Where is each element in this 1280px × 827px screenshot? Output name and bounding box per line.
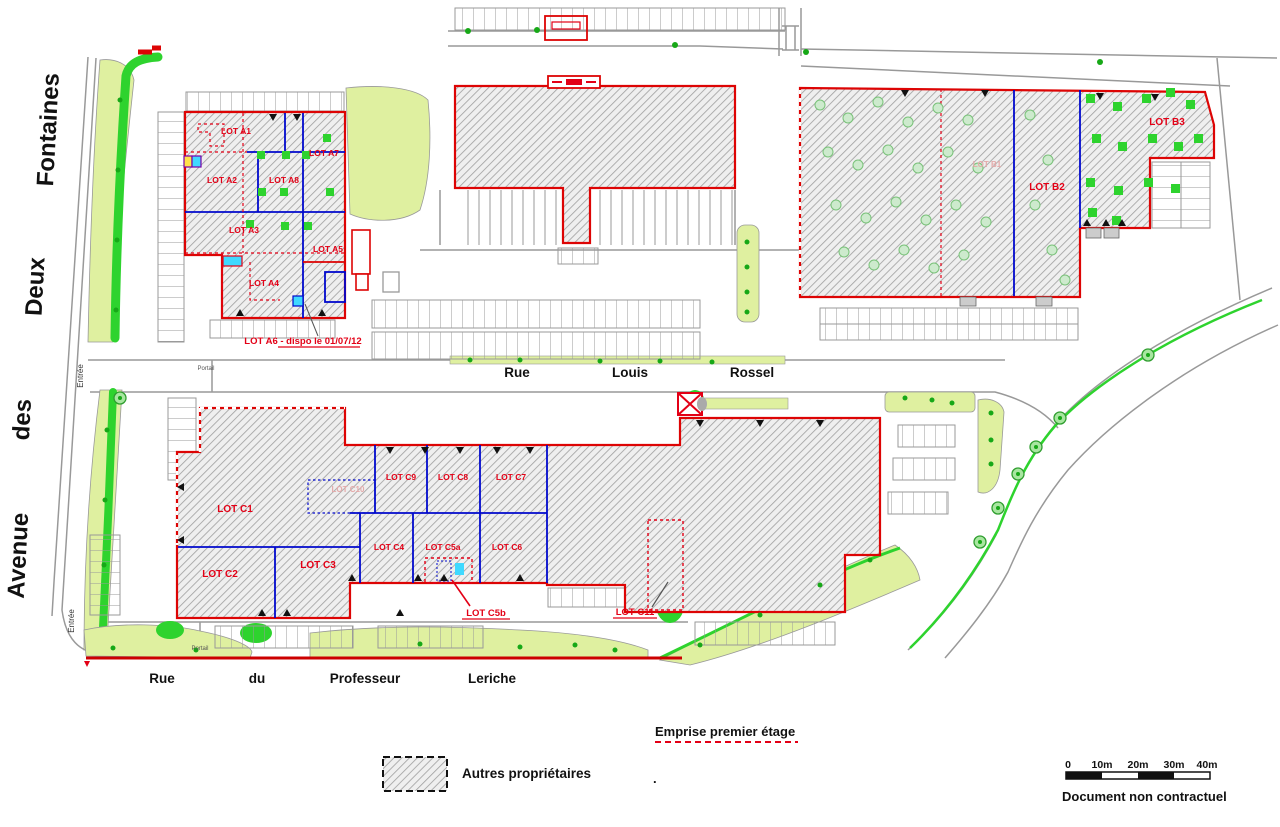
lot-c7-label: LOT C7 bbox=[496, 472, 526, 482]
entree-label-top: Entrée bbox=[76, 364, 85, 388]
leriche-word-rue: Rue bbox=[149, 671, 175, 686]
lot-a7-label: LOT A7 bbox=[309, 148, 339, 158]
marker-yellow bbox=[184, 156, 192, 167]
scale-seg-4 bbox=[1174, 772, 1210, 779]
lot-c8-label: LOT C8 bbox=[438, 472, 468, 482]
legend: Emprise premier étage Autres propriétair… bbox=[383, 724, 798, 791]
separator-dot: . bbox=[653, 771, 657, 786]
green-line-diagonal bbox=[910, 300, 1262, 648]
lot-a1-label: LOT A1 bbox=[221, 126, 251, 136]
avenue-word-avenue: Avenue bbox=[3, 512, 34, 599]
lot-b3-label: LOT B3 bbox=[1149, 117, 1185, 128]
avenue-word-des: des bbox=[8, 398, 37, 441]
lot-c3-label: LOT C3 bbox=[300, 560, 336, 571]
marker-cyan-2 bbox=[223, 256, 242, 266]
lot-c5b-label: LOT C5b bbox=[466, 608, 506, 619]
lot-c5a-label: LOT C5a bbox=[426, 542, 461, 552]
lot-b2-label: LOT B2 bbox=[1029, 182, 1065, 193]
strip-center-right bbox=[737, 225, 759, 322]
outbuildings-a bbox=[352, 230, 399, 292]
autres-swatch bbox=[383, 757, 447, 791]
blob-right-of-a bbox=[346, 87, 430, 221]
portail-label-top: Portail bbox=[197, 366, 214, 372]
scale-tick-20: 20m bbox=[1127, 759, 1148, 771]
scale-seg-3 bbox=[1138, 772, 1174, 779]
lot-c9-label: LOT C9 bbox=[386, 472, 416, 482]
central-building-outline bbox=[455, 86, 735, 243]
scale-seg-1 bbox=[1066, 772, 1102, 779]
central-building bbox=[455, 16, 735, 243]
scale-bar: 0 10m 20m 30m 40m Document non contractu… bbox=[1062, 759, 1227, 804]
lot-c6-label: LOT C6 bbox=[492, 542, 522, 552]
lot-a2-label: LOT A2 bbox=[207, 175, 237, 185]
lot-c10-label: LOT C10 bbox=[332, 485, 365, 494]
lot-c1-label: LOT C1 bbox=[217, 504, 253, 515]
leriche-word-professeur: Professeur bbox=[330, 671, 401, 686]
rossel-word-rossel: Rossel bbox=[730, 365, 774, 380]
lot-b1-label: LOT B1 bbox=[973, 160, 1002, 169]
lot-a6-note: LOT A6 - dispo le 01/07/12 bbox=[244, 336, 361, 347]
central-canopy-stalls bbox=[468, 190, 732, 245]
red-marks-top-left bbox=[138, 48, 161, 52]
strip-right-2 bbox=[885, 392, 975, 412]
avenue-word-deux: Deux bbox=[20, 256, 50, 317]
avenue-word-fontaines: Fontaines bbox=[32, 72, 65, 187]
lot-c2-label: LOT C2 bbox=[202, 569, 238, 580]
roof-marker-fill bbox=[566, 79, 582, 85]
boundary-red-tick bbox=[84, 661, 90, 667]
rossel-word-rue: Rue bbox=[504, 365, 530, 380]
lot-a5-label: LOT A5 bbox=[313, 244, 343, 254]
portail-label-bottom: Portail bbox=[191, 646, 208, 652]
strip-under-x bbox=[700, 398, 788, 409]
lot-a4-label: LOT A4 bbox=[249, 278, 279, 288]
lot-c11-label: LOT C11 bbox=[616, 607, 655, 618]
green-blob-1 bbox=[156, 621, 184, 639]
entree-label-bottom: Entrée bbox=[67, 609, 76, 633]
emprise-label: Emprise premier étage bbox=[655, 724, 795, 739]
site-plan-drawing: LOT A1 LOT A2 LOT A8 LOT A7 LOT A3 LOT A… bbox=[0, 0, 1280, 827]
crossed-stall-marker bbox=[678, 393, 707, 415]
document-label: Document non contractuel bbox=[1062, 789, 1227, 804]
block-c bbox=[177, 393, 880, 618]
scale-tick-0: 0 bbox=[1065, 759, 1071, 771]
rossel-word-louis: Louis bbox=[612, 365, 648, 380]
scale-tick-10: 10m bbox=[1091, 759, 1112, 771]
scale-tick-30: 30m bbox=[1163, 759, 1184, 771]
leriche-word-du: du bbox=[249, 671, 266, 686]
marker-cyan-3 bbox=[293, 296, 303, 306]
marker-cyan-1 bbox=[192, 156, 201, 167]
autres-label: Autres propriétaires bbox=[462, 766, 591, 781]
lot-c4-label: LOT C4 bbox=[374, 542, 404, 552]
scale-tick-40: 40m bbox=[1196, 759, 1217, 771]
lot-a3-label: LOT A3 bbox=[229, 225, 259, 235]
lot-a8-label: LOT A8 bbox=[269, 175, 299, 185]
scale-seg-2 bbox=[1102, 772, 1138, 779]
leriche-word-leriche: Leriche bbox=[468, 671, 517, 686]
site-plan: LOT A1 LOT A2 LOT A8 LOT A7 LOT A3 LOT A… bbox=[0, 0, 1280, 827]
marker-cyan-c5b bbox=[455, 563, 464, 575]
